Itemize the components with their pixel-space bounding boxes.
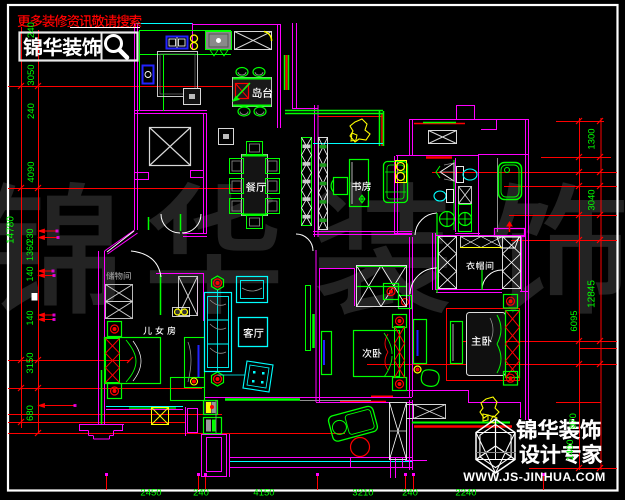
svg-text:240: 240 xyxy=(26,103,37,119)
svg-text:240: 240 xyxy=(402,488,418,499)
svg-text:1300: 1300 xyxy=(587,128,598,149)
svg-text:240: 240 xyxy=(26,22,37,38)
svg-text:240: 240 xyxy=(193,488,209,499)
svg-text:140: 140 xyxy=(25,310,35,325)
svg-text:3040: 3040 xyxy=(587,189,598,210)
svg-text:4150: 4150 xyxy=(253,488,274,499)
svg-text:970: 970 xyxy=(568,413,579,429)
svg-text:2450: 2450 xyxy=(140,488,161,499)
svg-text:4090: 4090 xyxy=(26,161,37,182)
svg-text:14780: 14780 xyxy=(6,216,17,244)
svg-text:140: 140 xyxy=(25,266,35,281)
svg-text:2240: 2240 xyxy=(455,488,476,499)
svg-text:3150: 3150 xyxy=(25,352,36,373)
svg-text:12845: 12845 xyxy=(587,280,598,308)
svg-text:1400: 1400 xyxy=(565,439,576,460)
svg-text:1360: 1360 xyxy=(25,241,35,261)
svg-text:6095: 6095 xyxy=(569,310,580,331)
svg-text:WWW.JS-JINHUA.COM: WWW.JS-JINHUA.COM xyxy=(463,470,605,484)
svg-text:3210: 3210 xyxy=(352,488,373,499)
svg-text:3050: 3050 xyxy=(26,64,37,85)
svg-text:680: 680 xyxy=(25,405,36,421)
